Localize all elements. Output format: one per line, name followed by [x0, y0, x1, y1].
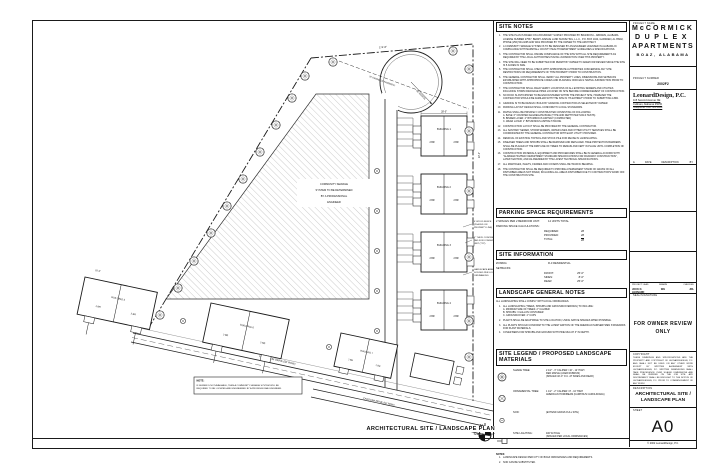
svg-text:BUILDING 2: BUILDING 2	[437, 186, 452, 189]
site-note-item: 3. THE CONTRACTOR SHALL INSURE COMPLIANC…	[496, 53, 627, 59]
zoning-label: ZONING:	[496, 262, 548, 266]
parking-section: PARKING SPACE REQUIREMENTS 2 SPACES PER …	[496, 208, 627, 243]
legend-note-item: 1. LANDSCAPE DESIGN PER CITY OF BOAZ ORD…	[496, 456, 627, 459]
revision-table: Δ DATE DESCRIPTION BY	[630, 161, 696, 165]
svg-text:ENGINEER: ENGINEER	[327, 200, 341, 204]
site-note-item: 9. GRADING IS TO BE DESIGN / BUILD BY GR…	[496, 102, 627, 105]
checked-label: CHECKED	[673, 284, 694, 286]
project-city: BOAZ, ALABAMA	[630, 52, 696, 57]
seal-label: SEAL/SIGNATURE	[630, 293, 657, 297]
legend-note-item: 2. SOD CAN BE SUBSTITUTED.	[496, 461, 627, 464]
copyright-label: COPYRIGHT	[630, 352, 650, 356]
parking-calc-label: PARKING SPACE CALCULATIONS:	[496, 225, 548, 229]
title-block-footer: © 2002 LeonardDesign, P.C.	[630, 442, 696, 445]
site-note-item: 16. CONSTRUCTION MATERIALS, EQUIPMENT AN…	[496, 152, 627, 161]
svg-text:BUILDING 4: BUILDING 4	[437, 302, 452, 305]
sheet-label: SHEET	[630, 408, 642, 412]
landscape-intro: ALL LANDSCAPING SHALL COMPLY WITH LOCAL …	[496, 300, 627, 303]
site-note-item: 5. THE CONTRACTOR SHALL CHECK WITH APPRO…	[496, 68, 627, 74]
svg-text:IF SEWER IS NOT AVAILABLE, THE: IF SEWER IS NOT AVAILABLE, THEN A COMMUN…	[197, 384, 280, 387]
note-box: NOTE: IF SEWER IS NOT AVAILABLE, THEN A …	[194, 377, 302, 394]
community-sewage-area: COMMUNITY SEWAGE SYSTEM TO BE DETERMINED…	[166, 94, 371, 299]
svg-text:2 BR: 2 BR	[429, 200, 434, 202]
firm-phone: Telephone: 256.739.1830	[633, 106, 699, 110]
svg-text:COMMUNITY SEWAGE: COMMUNITY SEWAGE	[320, 182, 348, 186]
svg-text:UNIT (TYP): UNIT (TYP)	[474, 243, 486, 245]
lead-label: PROJECT LEAD	[632, 284, 653, 286]
parking-title: PARKING SPACE REQUIREMENTS	[496, 208, 627, 218]
sheet-description: ARCHITECTURAL SITE / LANDSCAPE PLAN	[630, 392, 696, 404]
building-7: BUILDING 7 2 BR 2 BR	[333, 333, 398, 383]
site-notes-list: 1. THE SITE PLAN IS BASED ON A BOUNDARY …	[496, 34, 627, 176]
revision-date-label: DATE	[645, 161, 655, 164]
site-note-item: 12. CONSTRUCTION LAYOUT SHALL BE PROVIDE…	[496, 125, 627, 128]
site-note-item: 11. PAVING SHALL BE PRIVATELY CONSTRUCTE…	[496, 111, 627, 124]
legend-item-shade-tree: SHADE TREE: 2 1/2" - 3" CALIPER / 10' - …	[496, 369, 627, 387]
revision-description-label: DESCRIPTION	[657, 161, 683, 164]
notes-column: SITE NOTES 1. THE SITE PLAN IS BASED ON …	[493, 21, 629, 438]
setbacks-table: FRONT:25'-0" SIDES:8'-0" REAR:25'-0"	[544, 272, 584, 284]
site-note-item: 17. ALL MANHOLES, INLETS, FRAMES AND COV…	[496, 163, 627, 166]
legend-item-sod: SOD: (EXTEND GRASS FULL SITE)	[496, 411, 627, 429]
landscape-note-item: 2. PLANTS SHALL BE ADAPTABLE TO SITE LOC…	[496, 319, 627, 322]
site-notes-section: SITE NOTES 1. THE SITE PLAN IS BASED ON …	[496, 22, 627, 178]
landscape-note-item: 4. COVER BEDS FOR SHRUBS AND GROUND WITH…	[496, 331, 627, 334]
site-note-item: 7. THE CONTRACTOR SHALL FIELD VERIFY LOC…	[496, 87, 627, 93]
review-stamp: FOR OWNER REVIEW ONLY	[630, 321, 696, 336]
svg-text:REQUIRED TO BE LOCATED AND ENG: REQUIRED TO BE LOCATED AND ENGINEERED BY…	[197, 387, 282, 390]
shade-tree-icon	[496, 369, 510, 387]
svg-text:LANDSCAPE AREA: LANDSCAPE AREA	[474, 268, 494, 271]
building-2: BUILDING 2 2 BR 2 BR	[413, 174, 474, 214]
plan-scale: Scale: 1" = 20'-0"	[367, 432, 496, 436]
building-1: BUILDING 1 2 BR 2 BR	[413, 116, 474, 156]
site-notes-title: SITE NOTES	[496, 22, 627, 32]
landscape-note-item: 3. ALL PLANTS SHOULD CONFORM TO THE LATE…	[496, 324, 627, 330]
firm-block: LeonardDesign, P.C. 115 Second Avenue NE…	[630, 93, 699, 110]
sheet-number: A0	[630, 417, 696, 437]
setbacks-label: SETBACKS:	[496, 267, 548, 271]
project-number-label: PROJECT NUMBER	[630, 76, 659, 80]
parking-calc-table: REQUIRED:28 PROVIDED:28 TOTAL:28	[544, 230, 584, 243]
garage-pads	[410, 353, 465, 387]
site-note-item: 10. PARKING LAYOUT DESIGN SHALL CONFORM …	[496, 106, 627, 109]
svg-text:BUILDING 1: BUILDING 1	[437, 128, 452, 131]
site-note-item: 8. NO ROCK IS ANTICIPATED TO BE ENCOUNTE…	[496, 94, 627, 100]
building-6: BUILDING 6 2 BR 2 BR	[199, 303, 289, 376]
drainage-easement-label: 20' DRAINAGE EASEMENT	[369, 75, 397, 87]
landscape-notes-list: 1. ALL LANDSCAPING (TREES, SHRUBS AND GR…	[496, 305, 627, 334]
svg-text:BUILDING 3: BUILDING 3	[437, 244, 452, 247]
svg-text:2 BR: 2 BR	[453, 142, 458, 144]
parking-ratio-value: 14 UNITS TOTAL	[548, 220, 569, 224]
drawn-label: DRAWN	[653, 284, 674, 286]
landscape-note-item: 1. ALL LANDSCAPING (TREES, SHRUBS AND GR…	[496, 305, 627, 318]
site-note-item: 1. THE SITE PLAN IS BASED ON A BOUNDARY …	[496, 34, 627, 43]
description-label: DESCRIPTION	[630, 386, 652, 390]
svg-text:6' WOOD FENCE: 6' WOOD FENCE	[474, 221, 492, 223]
revision-by-label: BY	[685, 161, 693, 164]
title-block: PROJECT NAME McCORMICK DUPLEX APARTMENTS…	[629, 21, 696, 447]
revision-delta-icon: Δ	[633, 161, 643, 164]
project-name: McCORMICK DUPLEX APARTMENTS BOAZ, ALABAM…	[630, 25, 696, 57]
building-5: BUILDING 5 2 BR 2 BR	[73, 277, 157, 347]
project-number: 2002F2	[630, 82, 696, 86]
site-note-item: 13. ALL SANITARY SEWER, STORM SEWERS, WA…	[496, 129, 627, 135]
landscape-note: LANDSCAPE AREA SODDED PER LOCAL ORDINANC…	[463, 268, 497, 277]
svg-text:BY A PROFESSIONAL: BY A PROFESSIONAL	[321, 194, 348, 198]
building-3: BUILDING 3 2 BR 2 BR	[413, 232, 474, 272]
svg-text:ORDINANCES: ORDINANCES	[474, 274, 489, 277]
legend-item-ornamental-tree: ORNAMENTAL TREE: 1 1/2" - 2" CALIPER / 8…	[496, 390, 627, 408]
site-note-item: 18. THE CONTRACTOR SHALL BE REQUIRED TO …	[496, 168, 627, 177]
site-note-item: 2. A COMMUNITY SEWAGE SYSTEM IS TO BE DE…	[496, 45, 627, 51]
dim-top-boundary: 174'-8"	[379, 45, 387, 50]
dim-building-gap-text: 22'-0"	[479, 152, 481, 158]
building-4: BUILDING 4 2 BR 2 BR	[413, 290, 474, 330]
svg-text:2 BR: 2 BR	[429, 142, 434, 144]
dim-front-setback: 25'-0"	[95, 270, 101, 273]
site-note-item: 15. DISEASED TREES AND SHRUBS SHALL BE R…	[496, 141, 627, 150]
svg-text:PROPERTY LINE): PROPERTY LINE)	[474, 227, 492, 229]
drawing-sheet: 174'-8" 20' DRAINAGE EASEMENT 60' RADIUS	[32, 20, 697, 449]
legend-notes-list: 1. LANDSCAPE DESIGN PER CITY OF BOAZ ORD…	[496, 456, 627, 464]
svg-text:(PLACED ON: (PLACED ON	[474, 223, 488, 226]
svg-text:2 BR: 2 BR	[429, 258, 434, 260]
site-info-title: SITE INFORMATION	[496, 250, 627, 260]
copyright-text: THESE DRAWINGS AND SPECIFICATIONS ARE TH…	[630, 357, 696, 386]
dim-building-width-text: 28'-0"	[441, 111, 447, 113]
svg-text:2 BR: 2 BR	[453, 258, 458, 260]
svg-text:SYSTEM TO BE DETERMINED: SYSTEM TO BE DETERMINED	[316, 188, 353, 192]
sod-icon	[496, 411, 510, 429]
svg-text:NOTE:: NOTE:	[197, 380, 205, 383]
site-note-item: 14. REMOVAL OF EXISTING TOPSOIL AND STOC…	[496, 137, 627, 140]
fence-note: 6' WOOD FENCE (PLACED ON PROPERTY LINE)	[463, 221, 492, 229]
svg-text:2 BR: 2 BR	[453, 200, 458, 202]
parking-bays	[397, 118, 413, 320]
ornamental-tree-icon	[496, 390, 510, 408]
landscape-notes-section: LANDSCAPE GENERAL NOTES ALL LANDSCAPING …	[496, 288, 627, 336]
site-note-item: 4. THE SITE WILL NEED TO BE SUBMITTED FO…	[496, 61, 627, 67]
bottom-strip: N ARCHITECTURAL SITE / LANDSCAPE PLAN Sc…	[33, 438, 629, 448]
svg-text:2 BR: 2 BR	[453, 316, 458, 318]
svg-text:2 BR: 2 BR	[429, 316, 434, 318]
site-info-section: SITE INFORMATION ZONING: R-3 RESIDENTIAL…	[496, 250, 627, 284]
cul-de-sac: 60' RADIUS	[380, 51, 442, 113]
parking-ratio-label: 2 SPACES PER 2 BEDROOM UNIT:	[496, 220, 548, 224]
legend-title: SITE LEGEND / PROPOSED LANDSCAPE MATERIA…	[496, 349, 627, 366]
plan-title: ARCHITECTURAL SITE / LANDSCAPE PLAN Scal…	[367, 426, 496, 436]
site-note-item: 6. THE GENERAL CONTRACTOR SHALL VERIFY A…	[496, 76, 627, 85]
zoning-value: R-3 RESIDENTIAL	[548, 262, 571, 266]
buildings-right-column: BUILDING 1 2 BR 2 BR BUILDING 2 2 BR 2 B…	[413, 116, 474, 330]
landscape-notes-title: LANDSCAPE GENERAL NOTES	[496, 288, 627, 298]
